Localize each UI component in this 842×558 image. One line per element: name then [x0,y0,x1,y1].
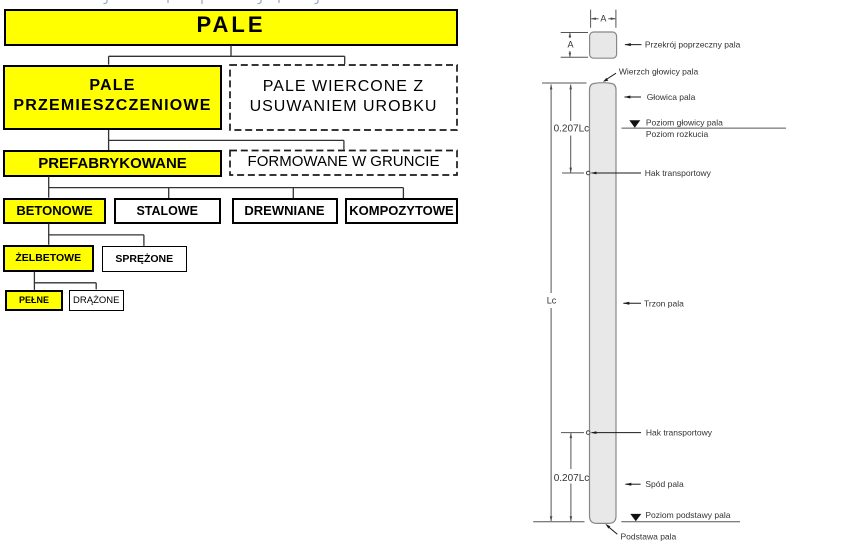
svg-text:Spód pala: Spód pala [645,479,684,489]
svg-text:Hak transportowy: Hak transportowy [645,168,712,178]
svg-text:0.207Lc: 0.207Lc [554,473,590,484]
svg-text:Wierzch głowicy pala: Wierzch głowicy pala [619,67,699,77]
svg-text:Podstawa pala: Podstawa pala [621,532,677,542]
svg-text:Poziom głowicy pala: Poziom głowicy pala [646,117,723,127]
svg-text:Poziom podstawy pala: Poziom podstawy pala [645,510,730,520]
svg-text:A: A [600,14,606,24]
svg-text:Poziom rozkucia: Poziom rozkucia [646,129,709,139]
svg-text:Głowica pala: Głowica pala [647,92,696,102]
svg-text:Trzon pala: Trzon pala [644,298,684,308]
svg-text:Przekrój poprzeczny pala: Przekrój poprzeczny pala [645,40,741,50]
svg-text:Hak transportowy: Hak transportowy [646,428,713,438]
svg-text:Lc: Lc [547,296,557,306]
svg-text:A: A [567,39,573,49]
svg-text:0.207Lc: 0.207Lc [554,123,590,134]
